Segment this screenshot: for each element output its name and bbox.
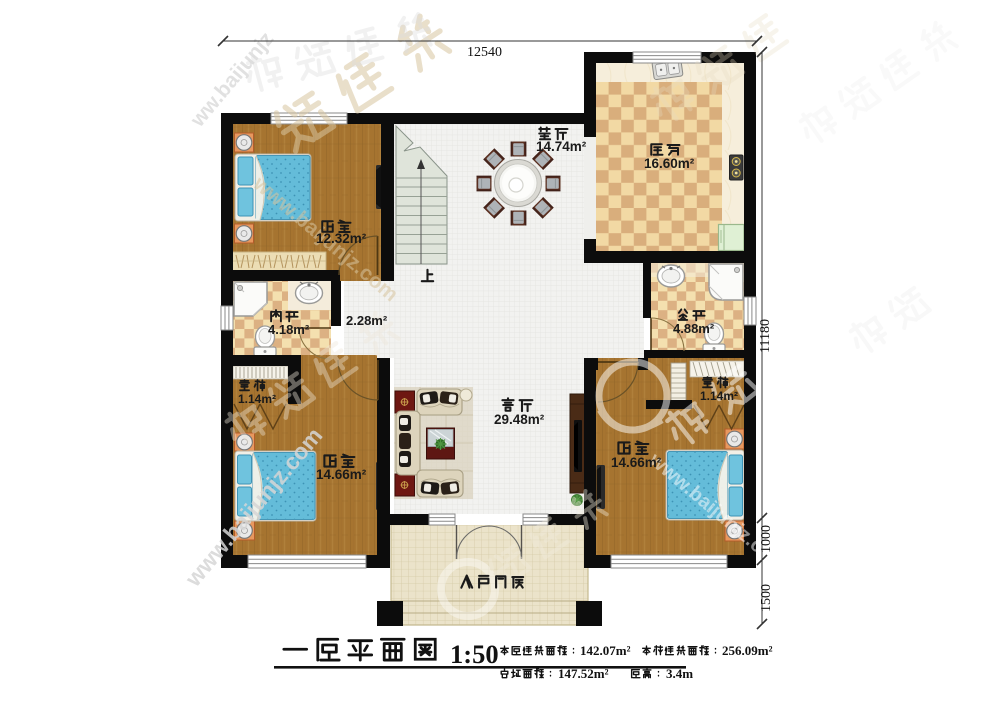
svg-text:4.88m²: 4.88m² <box>673 321 715 336</box>
svg-text:142.07m²: 142.07m² <box>580 643 631 658</box>
svg-text:2.28m²: 2.28m² <box>346 313 388 328</box>
svg-text:1:50: 1:50 <box>450 639 499 669</box>
svg-text:14.74m²: 14.74m² <box>536 139 587 154</box>
svg-text:1.14m²: 1.14m² <box>238 392 276 406</box>
svg-text:1000: 1000 <box>759 525 774 553</box>
svg-text:4.18m²: 4.18m² <box>268 322 310 337</box>
svg-text:11180: 11180 <box>758 319 773 353</box>
svg-text:16.60m²: 16.60m² <box>644 156 695 171</box>
svg-text:3.4m: 3.4m <box>666 666 693 681</box>
svg-text:147.52m²: 147.52m² <box>558 666 609 681</box>
svg-text:256.09m²: 256.09m² <box>722 643 773 658</box>
svg-text:14.66m²: 14.66m² <box>611 455 662 470</box>
svg-text:12540: 12540 <box>467 45 502 60</box>
svg-text:29.48m²: 29.48m² <box>494 412 545 427</box>
svg-text:1.14m²: 1.14m² <box>700 389 738 403</box>
svg-text:12.32m²: 12.32m² <box>316 231 367 246</box>
svg-text:1500: 1500 <box>759 584 774 612</box>
svg-text:14.66m²: 14.66m² <box>316 467 367 482</box>
